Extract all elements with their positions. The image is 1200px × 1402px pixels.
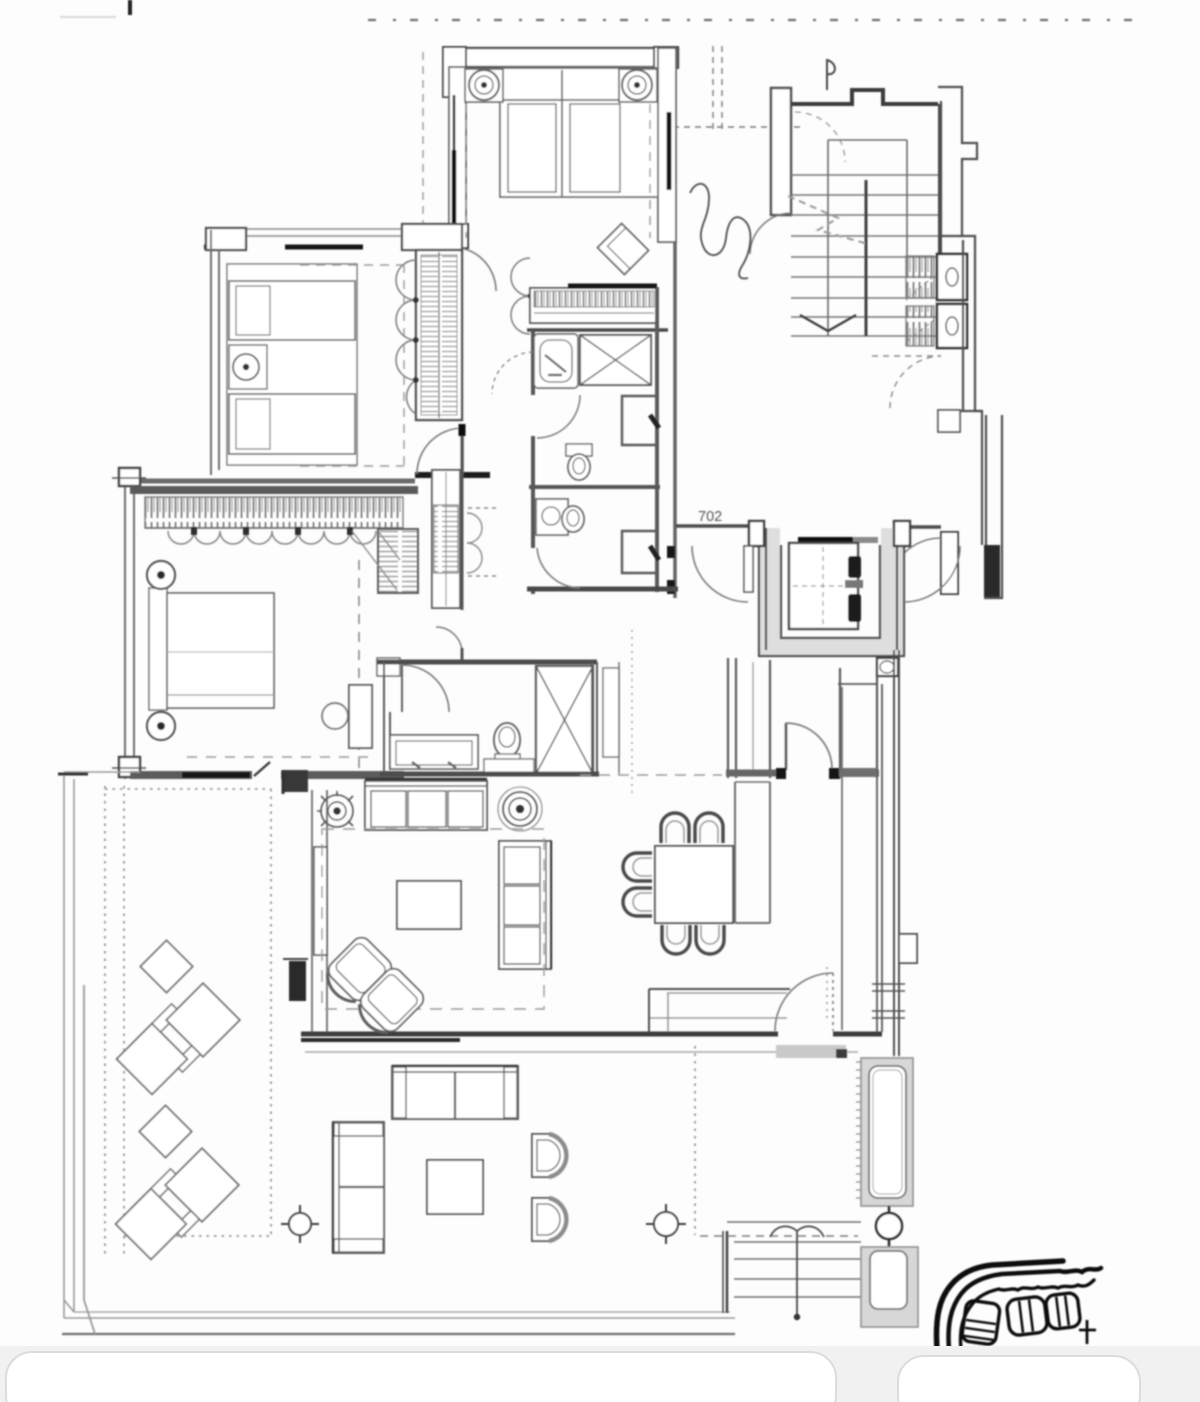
svg-text:702: 702 (698, 509, 722, 525)
